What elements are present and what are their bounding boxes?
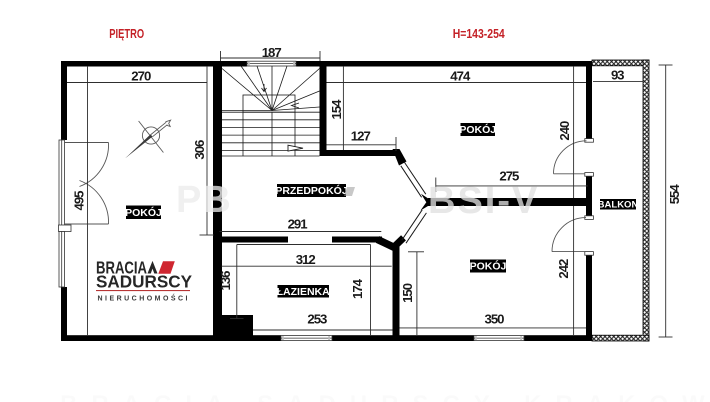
svg-text:154: 154 [329,99,344,120]
svg-text:291: 291 [288,216,308,231]
svg-text:NIERUCHOMOŚCI: NIERUCHOMOŚCI [98,293,188,302]
svg-text:127: 127 [351,129,371,144]
svg-text:174: 174 [350,278,365,299]
svg-text:PIĘTRO: PIĘTRO [109,27,144,41]
svg-text:BRACIA SADURSCY KRAKOW: BRACIA SADURSCY KRAKOW [60,391,710,402]
svg-text:PRZEDPOKÓJ: PRZEDPOKÓJ [275,184,348,197]
svg-text:187: 187 [262,45,282,60]
svg-text:240: 240 [557,121,572,141]
svg-text:350: 350 [485,311,505,326]
svg-text:BALKON: BALKON [598,199,639,210]
svg-text:253: 253 [307,311,327,326]
svg-text:474: 474 [450,69,471,84]
svg-text:SADURSCY: SADURSCY [96,271,192,291]
svg-text:554: 554 [667,184,682,205]
svg-text:93: 93 [611,68,625,83]
svg-text:ŁAZIENKA: ŁAZIENKA [277,286,330,298]
svg-text:POKÓJ: POKÓJ [459,123,496,136]
svg-text:270: 270 [131,68,151,83]
svg-text:H=143-254: H=143-254 [453,27,505,41]
svg-text:PB: PB [176,179,233,221]
svg-text:312: 312 [296,252,316,267]
svg-text:306: 306 [192,140,207,160]
svg-text:POKÓJ: POKÓJ [125,206,162,219]
svg-text:BSI-V: BSI-V [428,180,539,222]
svg-text:242: 242 [556,259,571,279]
svg-text:150: 150 [400,283,415,303]
svg-text:POKÓJ: POKÓJ [470,260,507,273]
svg-text:136: 136 [218,271,233,291]
svg-text:495: 495 [72,191,87,211]
